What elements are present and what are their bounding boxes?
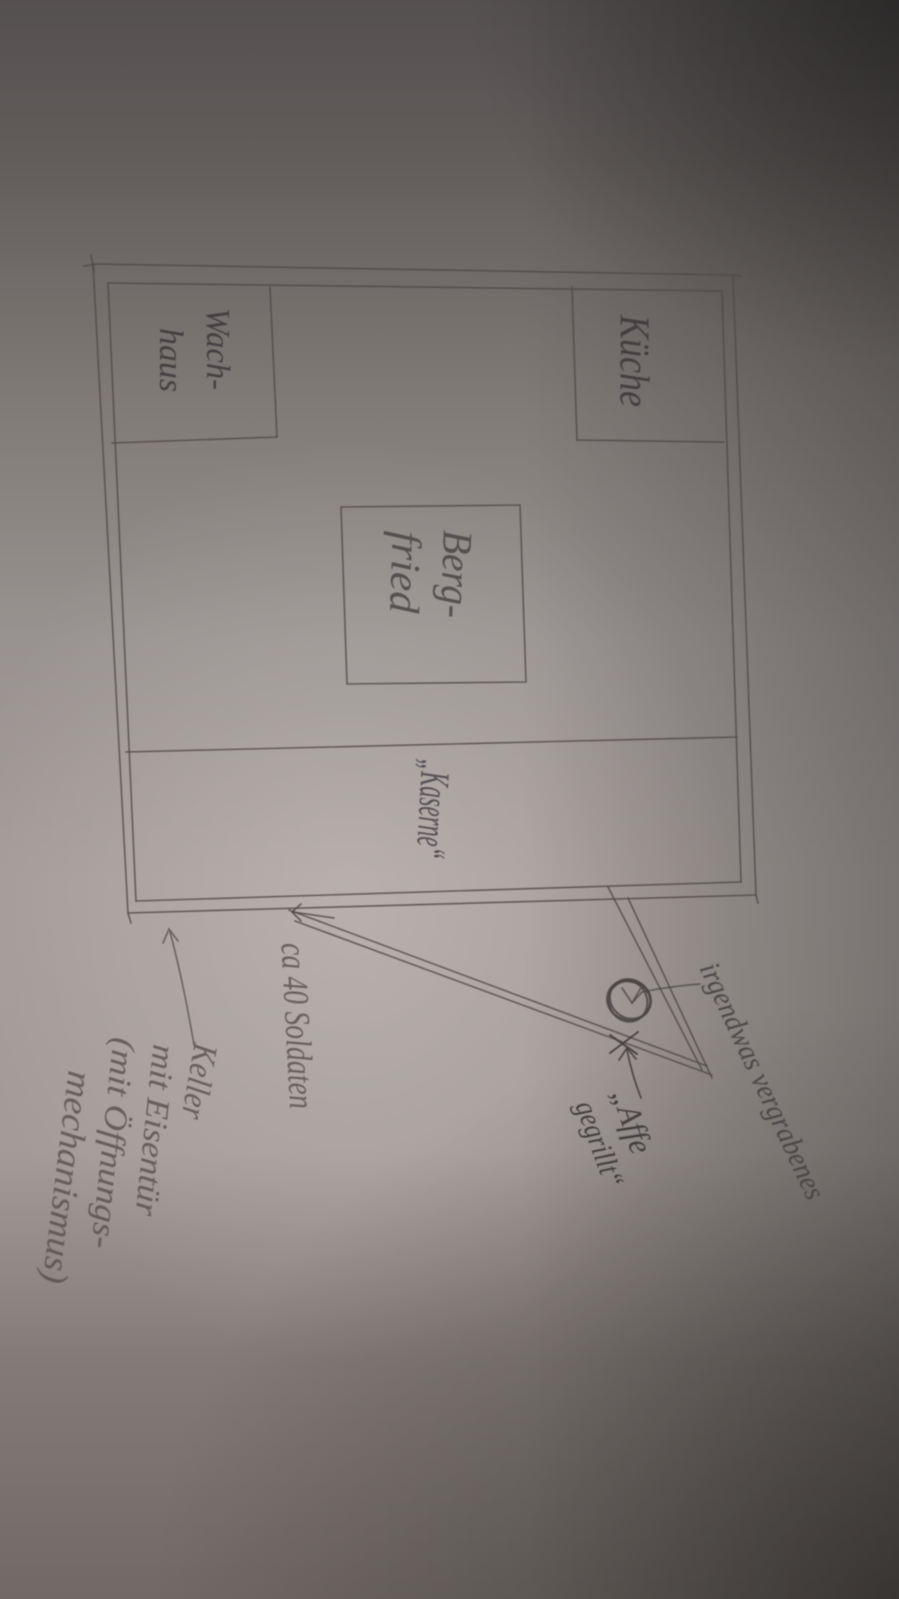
svg-text:haus: haus bbox=[152, 328, 189, 392]
svg-text:„Kaserne“: „Kaserne“ bbox=[407, 758, 458, 860]
svg-text:Berg-: Berg- bbox=[431, 529, 480, 619]
svg-text:fried: fried bbox=[380, 530, 429, 615]
svg-text:Küche: Küche bbox=[610, 314, 656, 407]
svg-text:ca 40 Soldaten: ca 40 Soldaten bbox=[273, 942, 322, 1110]
svg-text:irgendwas vergrabenes: irgendwas vergrabenes bbox=[693, 957, 832, 1205]
svg-text:Wach-: Wach- bbox=[199, 308, 236, 390]
